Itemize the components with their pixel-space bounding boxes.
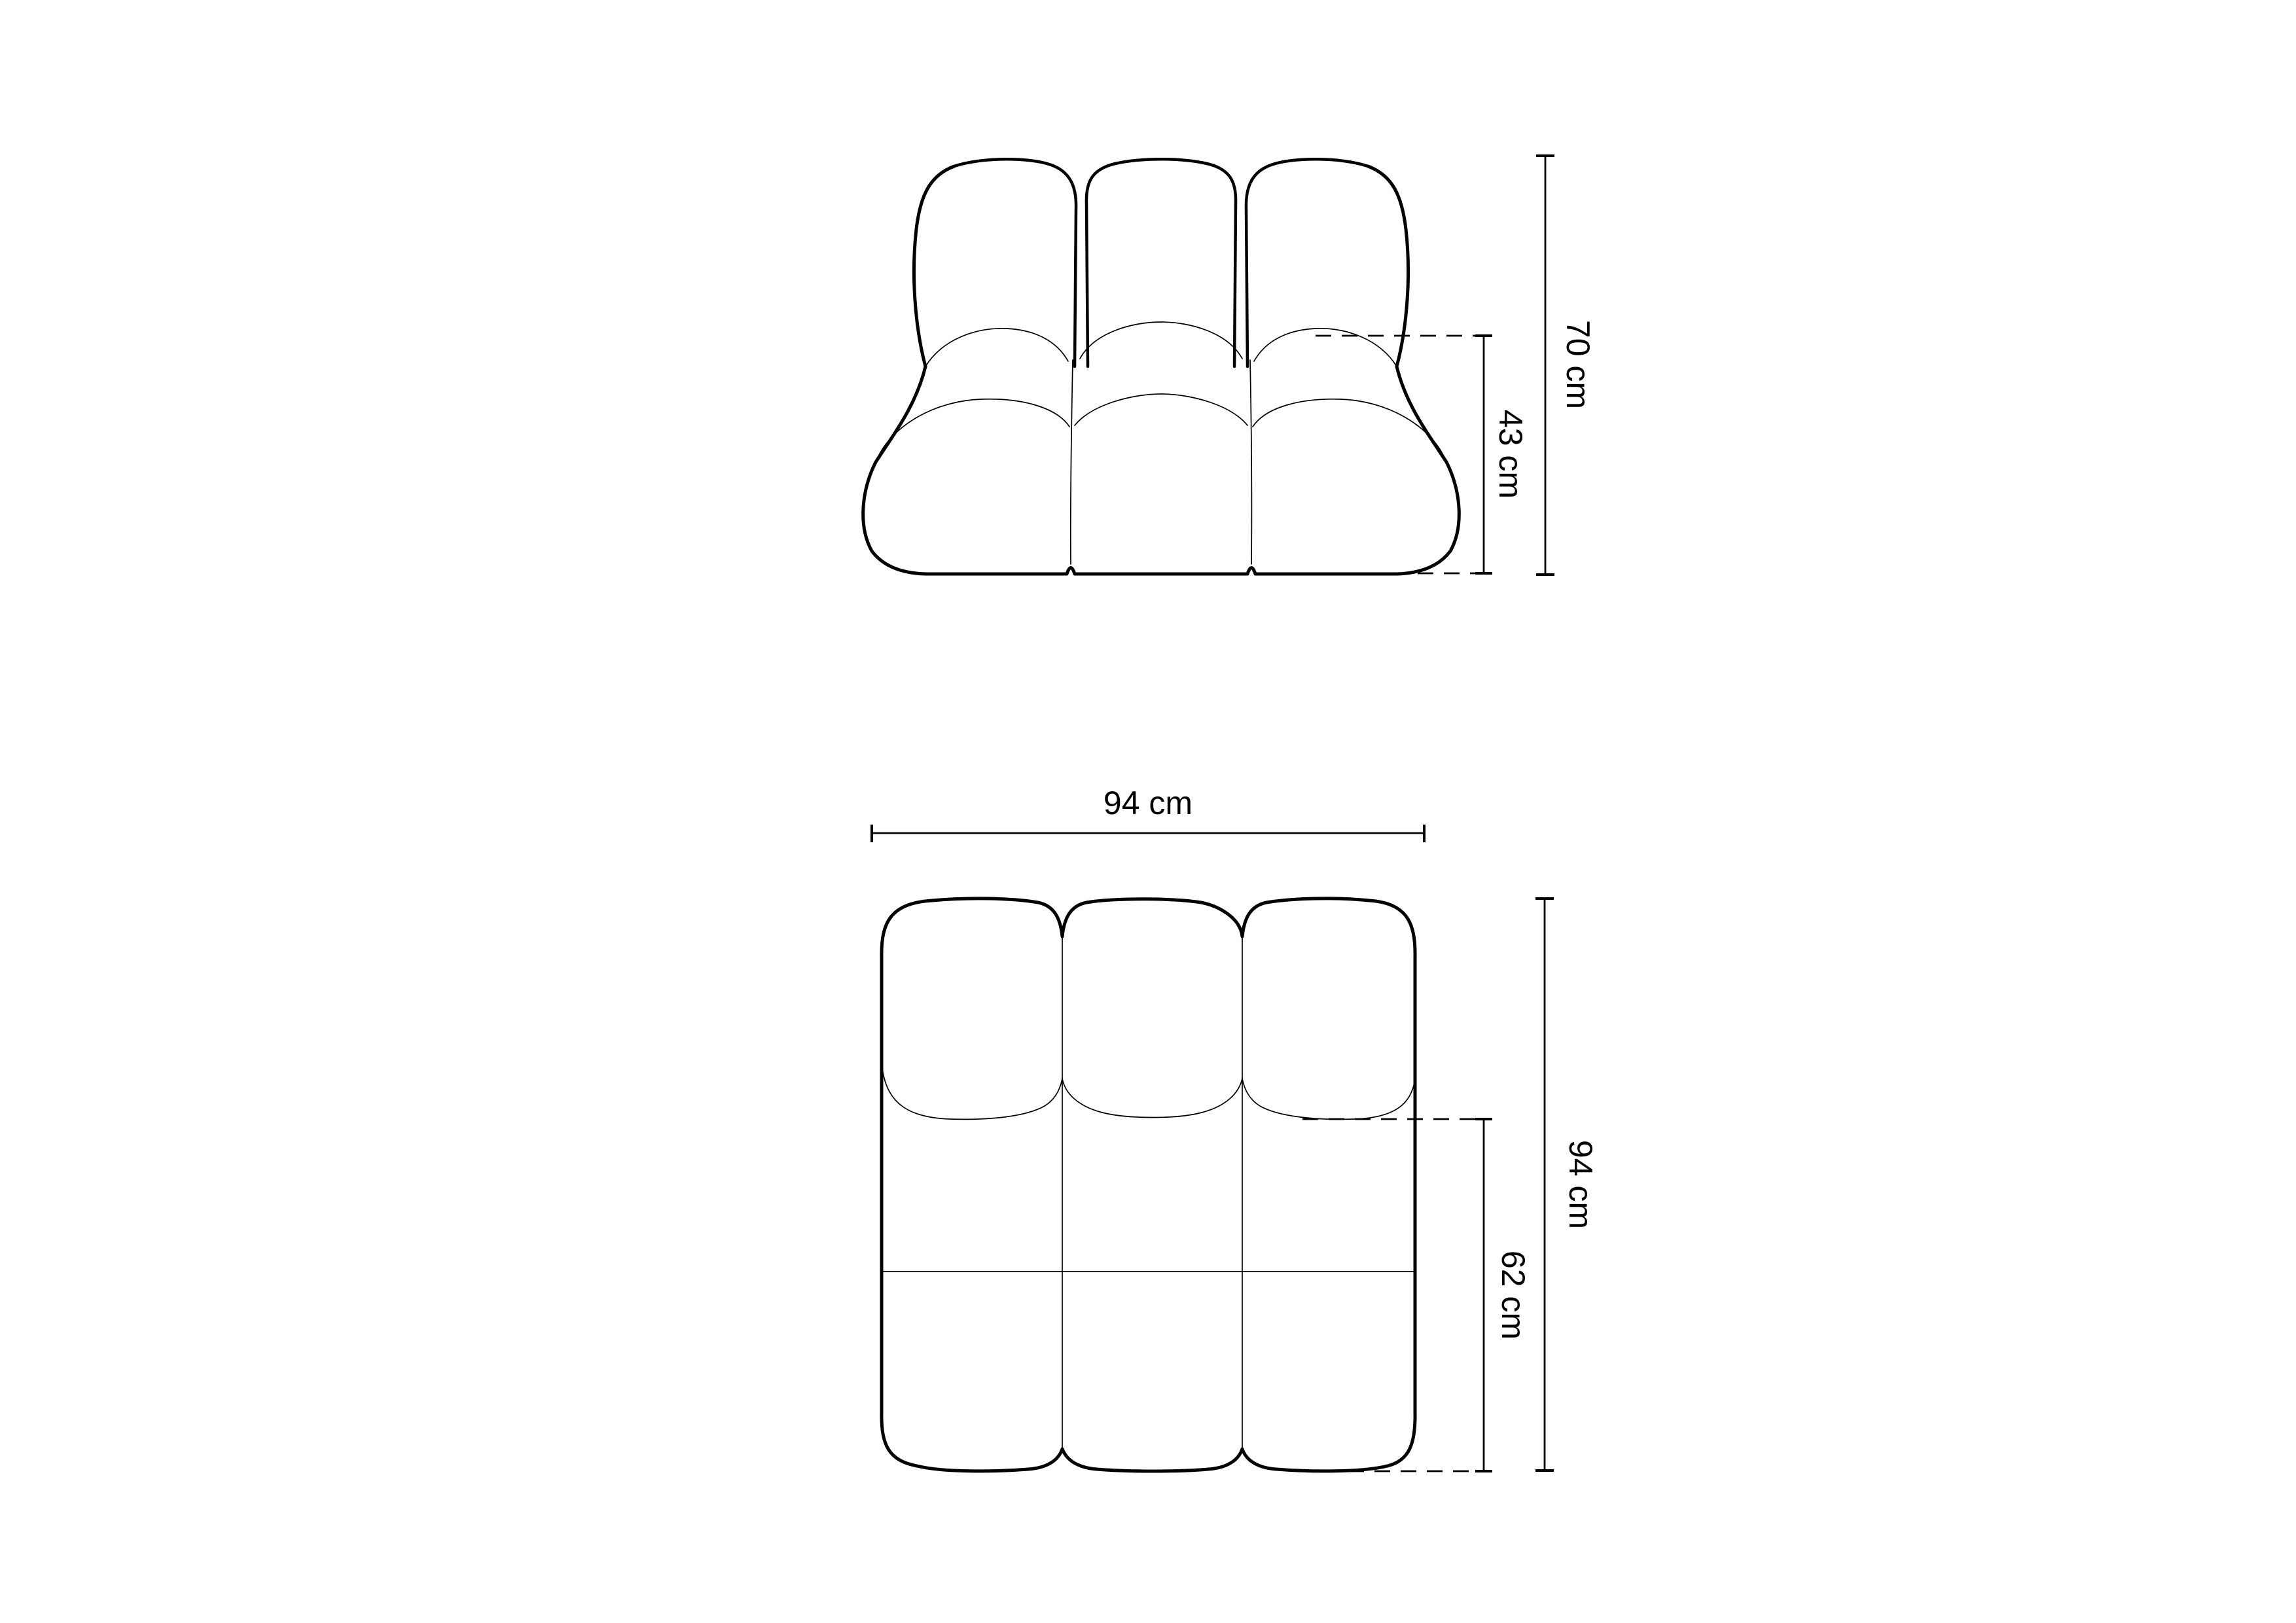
- plan-backrest-seam-middle: [1062, 1079, 1242, 1118]
- dimension-width: 94 cm: [872, 785, 1424, 842]
- front-puff-top-seam-left: [876, 399, 1069, 462]
- dimension-seat-depth: 62 cm: [1302, 1119, 1532, 1471]
- front-backrest-cushion-middle: [1086, 159, 1236, 366]
- plan-outline: [882, 899, 1415, 1471]
- dimension-label-94cm-depth: 94 cm: [1562, 1140, 1599, 1229]
- front-seat-top-seam-left: [925, 329, 1068, 366]
- dimension-label-62cm: 62 cm: [1495, 1251, 1532, 1340]
- dimension-label-70cm: 70 cm: [1560, 320, 1596, 409]
- front-backrest-cushion-left: [954, 159, 1076, 366]
- plan-backrest-seam-left: [882, 1061, 1062, 1119]
- dimension-label-94cm-width: 94 cm: [1103, 785, 1193, 821]
- furniture-dimension-diagram: 70 cm 43 cm: [0, 0, 2296, 1623]
- dimension-depth: 94 cm: [1535, 899, 1599, 1471]
- drawing-page: 70 cm 43 cm: [0, 0, 2296, 1623]
- front-silhouette-outline: [863, 166, 1460, 574]
- dimension-label-43cm: 43 cm: [1492, 410, 1529, 499]
- front-puff-top-seam-middle: [1075, 394, 1247, 425]
- dimension-seat-height: 43 cm: [1316, 336, 1529, 573]
- dimension-total-height: 70 cm: [1536, 156, 1596, 575]
- plan-backrest-seam-right: [1242, 1057, 1416, 1119]
- front-tuft-seam-right: [1250, 360, 1251, 564]
- front-puff-top-seam-right: [1253, 399, 1446, 462]
- front-tuft-seam-left: [1071, 360, 1073, 564]
- top-plan-view: 94 cm 94 cm 62 cm: [872, 785, 1599, 1471]
- front-elevation-view: 70 cm 43 cm: [863, 156, 1596, 575]
- front-seat-top-seam-middle: [1080, 322, 1242, 359]
- front-seat-top-seam-right: [1254, 329, 1397, 366]
